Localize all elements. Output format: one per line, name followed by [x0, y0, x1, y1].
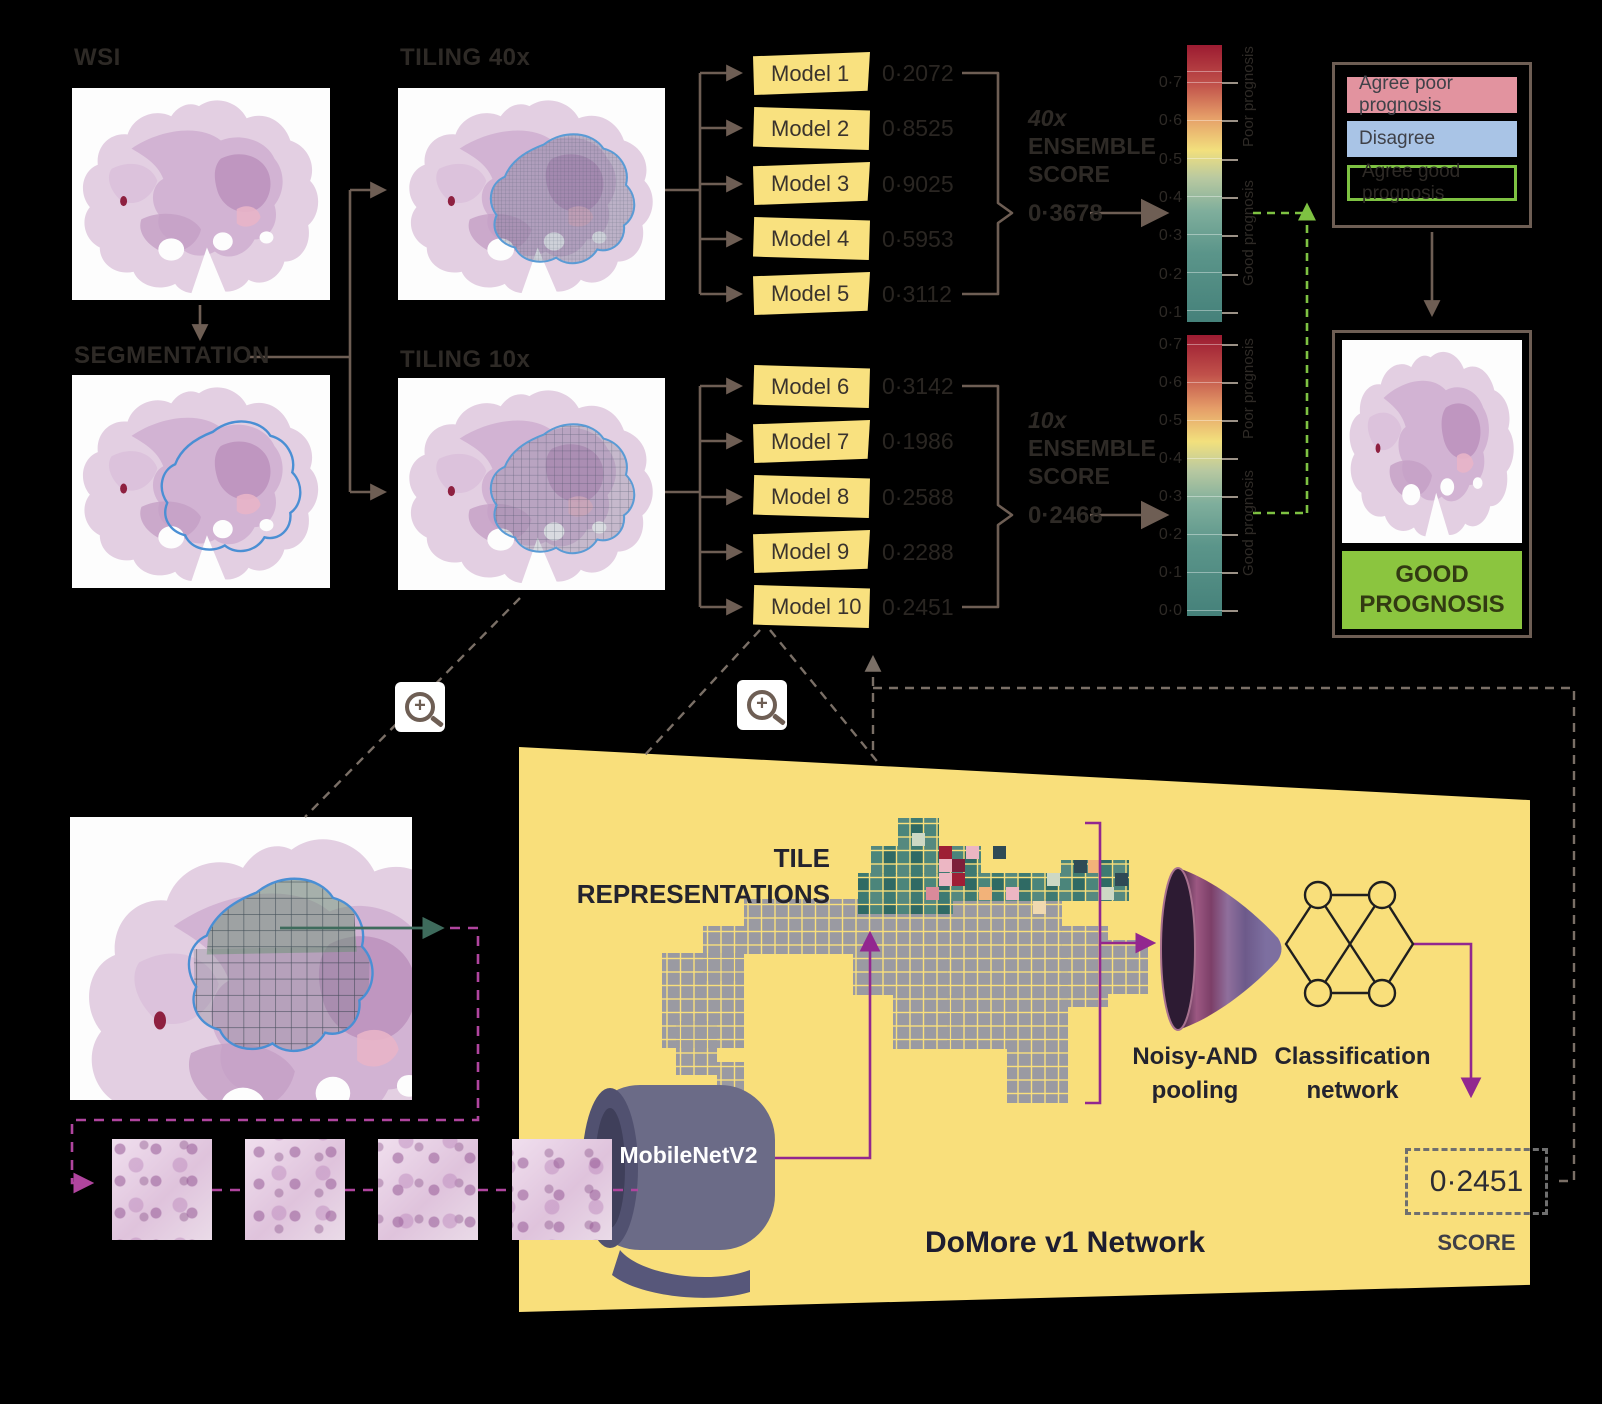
model-5-box: Model 5: [753, 272, 870, 315]
model-3-score: 0·9025: [882, 171, 992, 197]
model-1-box: Model 1: [753, 52, 870, 95]
cbar1-tick-0: 0·7: [1130, 74, 1182, 92]
cbar2-good-label: Good prognosis: [1240, 468, 1257, 578]
legend-agree-poor-label: Agree poor prognosis: [1359, 73, 1517, 117]
cbar1-good-label: Good prognosis: [1240, 178, 1257, 288]
agreement-legend: Agree poor prognosis Disagree Agree good…: [1332, 62, 1532, 228]
model-8-label: Model 8: [771, 484, 849, 510]
result-label: GOOD PROGNOSIS: [1357, 560, 1507, 620]
result-wsi-image: [1342, 340, 1522, 543]
ensemble-40x-value: 0·3678: [1028, 200, 1103, 228]
tile-image-2: [245, 1139, 345, 1240]
network-score-box: 0·2451: [1405, 1148, 1548, 1215]
model-2-box: Model 2: [753, 107, 870, 150]
classification-network-label: Classification network: [1255, 1040, 1450, 1108]
model-9-label: Model 9: [771, 539, 849, 565]
model-9-score: 0·2288: [882, 539, 992, 565]
result-box: GOOD PROGNOSIS: [1332, 330, 1532, 638]
cbar1-tick-2: 0·5: [1130, 151, 1182, 169]
figure-canvas: WSI TILING 40x SEGMENTATION TILING 10x: [0, 0, 1602, 1404]
noisy-and-funnel-icon: [1150, 860, 1300, 1045]
model-10-score: 0·2451: [882, 594, 992, 620]
model-10-box: Model 10: [753, 585, 870, 628]
cbar2-tick-2: 0·5: [1130, 412, 1182, 430]
cbar2-tick-5: 0·2: [1130, 526, 1182, 544]
cbar1-tick-3: 0·4: [1130, 189, 1182, 207]
tile-representations-line2: REPRESENTATIONS: [560, 876, 830, 912]
model-5-score: 0·3112: [882, 281, 992, 307]
cbar2-poor-label: Poor prognosis: [1240, 334, 1257, 444]
cbar1-poor-label: Poor prognosis: [1240, 42, 1257, 152]
model-10-label: Model 10: [771, 594, 862, 620]
cbar2-tick-7: 0·0: [1130, 602, 1182, 620]
domore-network-title: DoMore v1 Network: [900, 1226, 1230, 1260]
model-5-label: Model 5: [771, 281, 849, 307]
cbar1-tick-5: 0·2: [1130, 266, 1182, 284]
legend-disagree-label: Disagree: [1359, 128, 1435, 150]
mobilenet-label: MobileNetV2: [596, 1142, 781, 1169]
cbar1-tick-4: 0·3: [1130, 227, 1182, 245]
legend-agree-good: Agree good prognosis: [1347, 165, 1517, 201]
legend-agree-poor: Agree poor prognosis: [1347, 77, 1517, 113]
tile-image-1: [112, 1139, 212, 1240]
classifier-line2: network: [1255, 1074, 1450, 1108]
cbar2-tick-0: 0·7: [1130, 336, 1182, 354]
model-1-score: 0·2072: [882, 60, 992, 86]
model-6-label: Model 6: [771, 374, 849, 400]
network-score-label: SCORE: [1405, 1230, 1548, 1256]
network-score-value: 0·2451: [1430, 1165, 1523, 1199]
tiling-40x-label: TILING 40x: [400, 44, 530, 72]
tile-image-3: [378, 1139, 478, 1240]
model-4-label: Model 4: [771, 226, 849, 252]
model-4-box: Model 4: [753, 217, 870, 260]
classifier-line1: Classification: [1255, 1040, 1450, 1074]
cbar2-tick-3: 0·4: [1130, 450, 1182, 468]
cbar2-tick-1: 0·6: [1130, 374, 1182, 392]
model-9-box: Model 9: [753, 530, 870, 573]
legend-disagree: Disagree: [1347, 121, 1517, 157]
tile-representations-label: TILE REPRESENTATIONS: [560, 840, 830, 912]
model-2-score: 0·8525: [882, 115, 992, 141]
model-6-box: Model 6: [753, 365, 870, 408]
model-3-box: Model 3: [753, 162, 870, 205]
model-7-box: Model 7: [753, 420, 870, 463]
model-1-label: Model 1: [771, 61, 849, 87]
model-7-label: Model 7: [771, 429, 849, 455]
zoom-in-icon-2: [737, 680, 787, 730]
tiling-10x-label: TILING 10x: [400, 346, 530, 374]
result-label-box: GOOD PROGNOSIS: [1342, 551, 1522, 629]
magnifier-lens-icon-2: [747, 690, 777, 720]
ensemble-10x-value: 0·2468: [1028, 502, 1103, 530]
model-6-score: 0·3142: [882, 373, 992, 399]
model-4-score: 0·5953: [882, 226, 992, 252]
cbar1-tick-1: 0·6: [1130, 112, 1182, 130]
wsi-label: WSI: [74, 44, 121, 72]
model-8-box: Model 8: [753, 475, 870, 518]
cbar1-tick-6: 0·1: [1130, 304, 1182, 322]
model-8-score: 0·2588: [882, 484, 992, 510]
cbar2-tick-4: 0·3: [1130, 488, 1182, 506]
classification-network-icon: [1286, 882, 1413, 1006]
legend-agree-good-label: Agree good prognosis: [1362, 161, 1514, 205]
model-3-label: Model 3: [771, 171, 849, 197]
tile-representations-line1: TILE: [560, 840, 830, 876]
magnifier-lens-icon: [405, 692, 435, 722]
zoom-in-icon: [395, 682, 445, 732]
cbar2-tick-6: 0·1: [1130, 564, 1182, 582]
model-7-score: 0·1986: [882, 428, 992, 454]
model-2-label: Model 2: [771, 116, 849, 142]
segmentation-label: SEGMENTATION: [74, 342, 270, 370]
